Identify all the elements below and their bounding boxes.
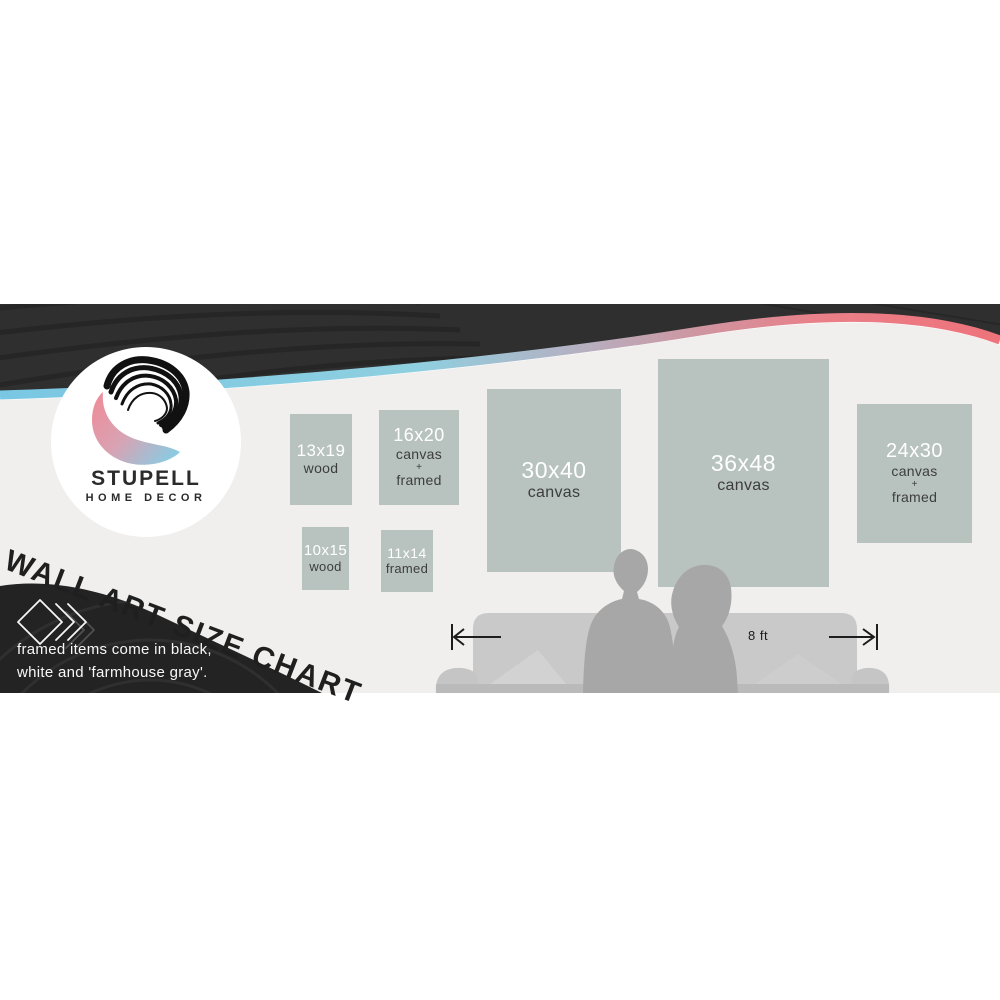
material-text: canvas — [891, 463, 937, 480]
size-text: 11x14 — [387, 546, 427, 561]
brand-tagline: HOME DECOR — [51, 492, 241, 504]
width-measurement-label: 8 ft — [748, 628, 768, 643]
size-text: 16x20 — [393, 426, 445, 445]
framed-note: framed items come in black, white and 'f… — [17, 639, 212, 684]
plus-text: + — [912, 480, 918, 489]
size-text: 13x19 — [297, 442, 346, 460]
size-box-11x14-label: 11x14 framed — [381, 530, 433, 592]
material-text: wood — [309, 559, 341, 575]
framed-note-line2: white and 'farmhouse gray'. — [17, 662, 212, 685]
size-box-16x20-label: 16x20 canvas + framed — [379, 410, 459, 505]
material-text: framed — [386, 561, 428, 577]
framed-note-line1: framed items come in black, — [17, 639, 212, 662]
size-box-10x15-label: 10x15 wood — [302, 527, 349, 590]
size-box-36x48-label: 36x48 canvas — [658, 359, 829, 587]
brand-name: STUPELL — [51, 467, 241, 491]
size-text: 24x30 — [886, 441, 943, 463]
material-text: framed — [396, 472, 441, 489]
wall-art-size-chart-banner: STUPELL HOME DECOR WALL ART SIZE CHART f… — [0, 0, 1000, 1000]
size-box-24x30-label: 24x30 canvas + framed — [857, 404, 972, 543]
material-text: canvas — [717, 476, 770, 495]
plus-text: + — [416, 463, 422, 472]
size-box-13x19-label: 13x19 wood — [290, 414, 352, 505]
material-text: canvas — [528, 483, 581, 502]
material-text: framed — [892, 489, 937, 506]
size-text: 30x40 — [521, 458, 586, 483]
size-box-30x40-label: 30x40 canvas — [487, 389, 621, 572]
size-text: 36x48 — [711, 451, 776, 476]
material-text: wood — [304, 460, 339, 477]
size-text: 10x15 — [304, 543, 347, 559]
material-text: canvas — [396, 446, 442, 463]
